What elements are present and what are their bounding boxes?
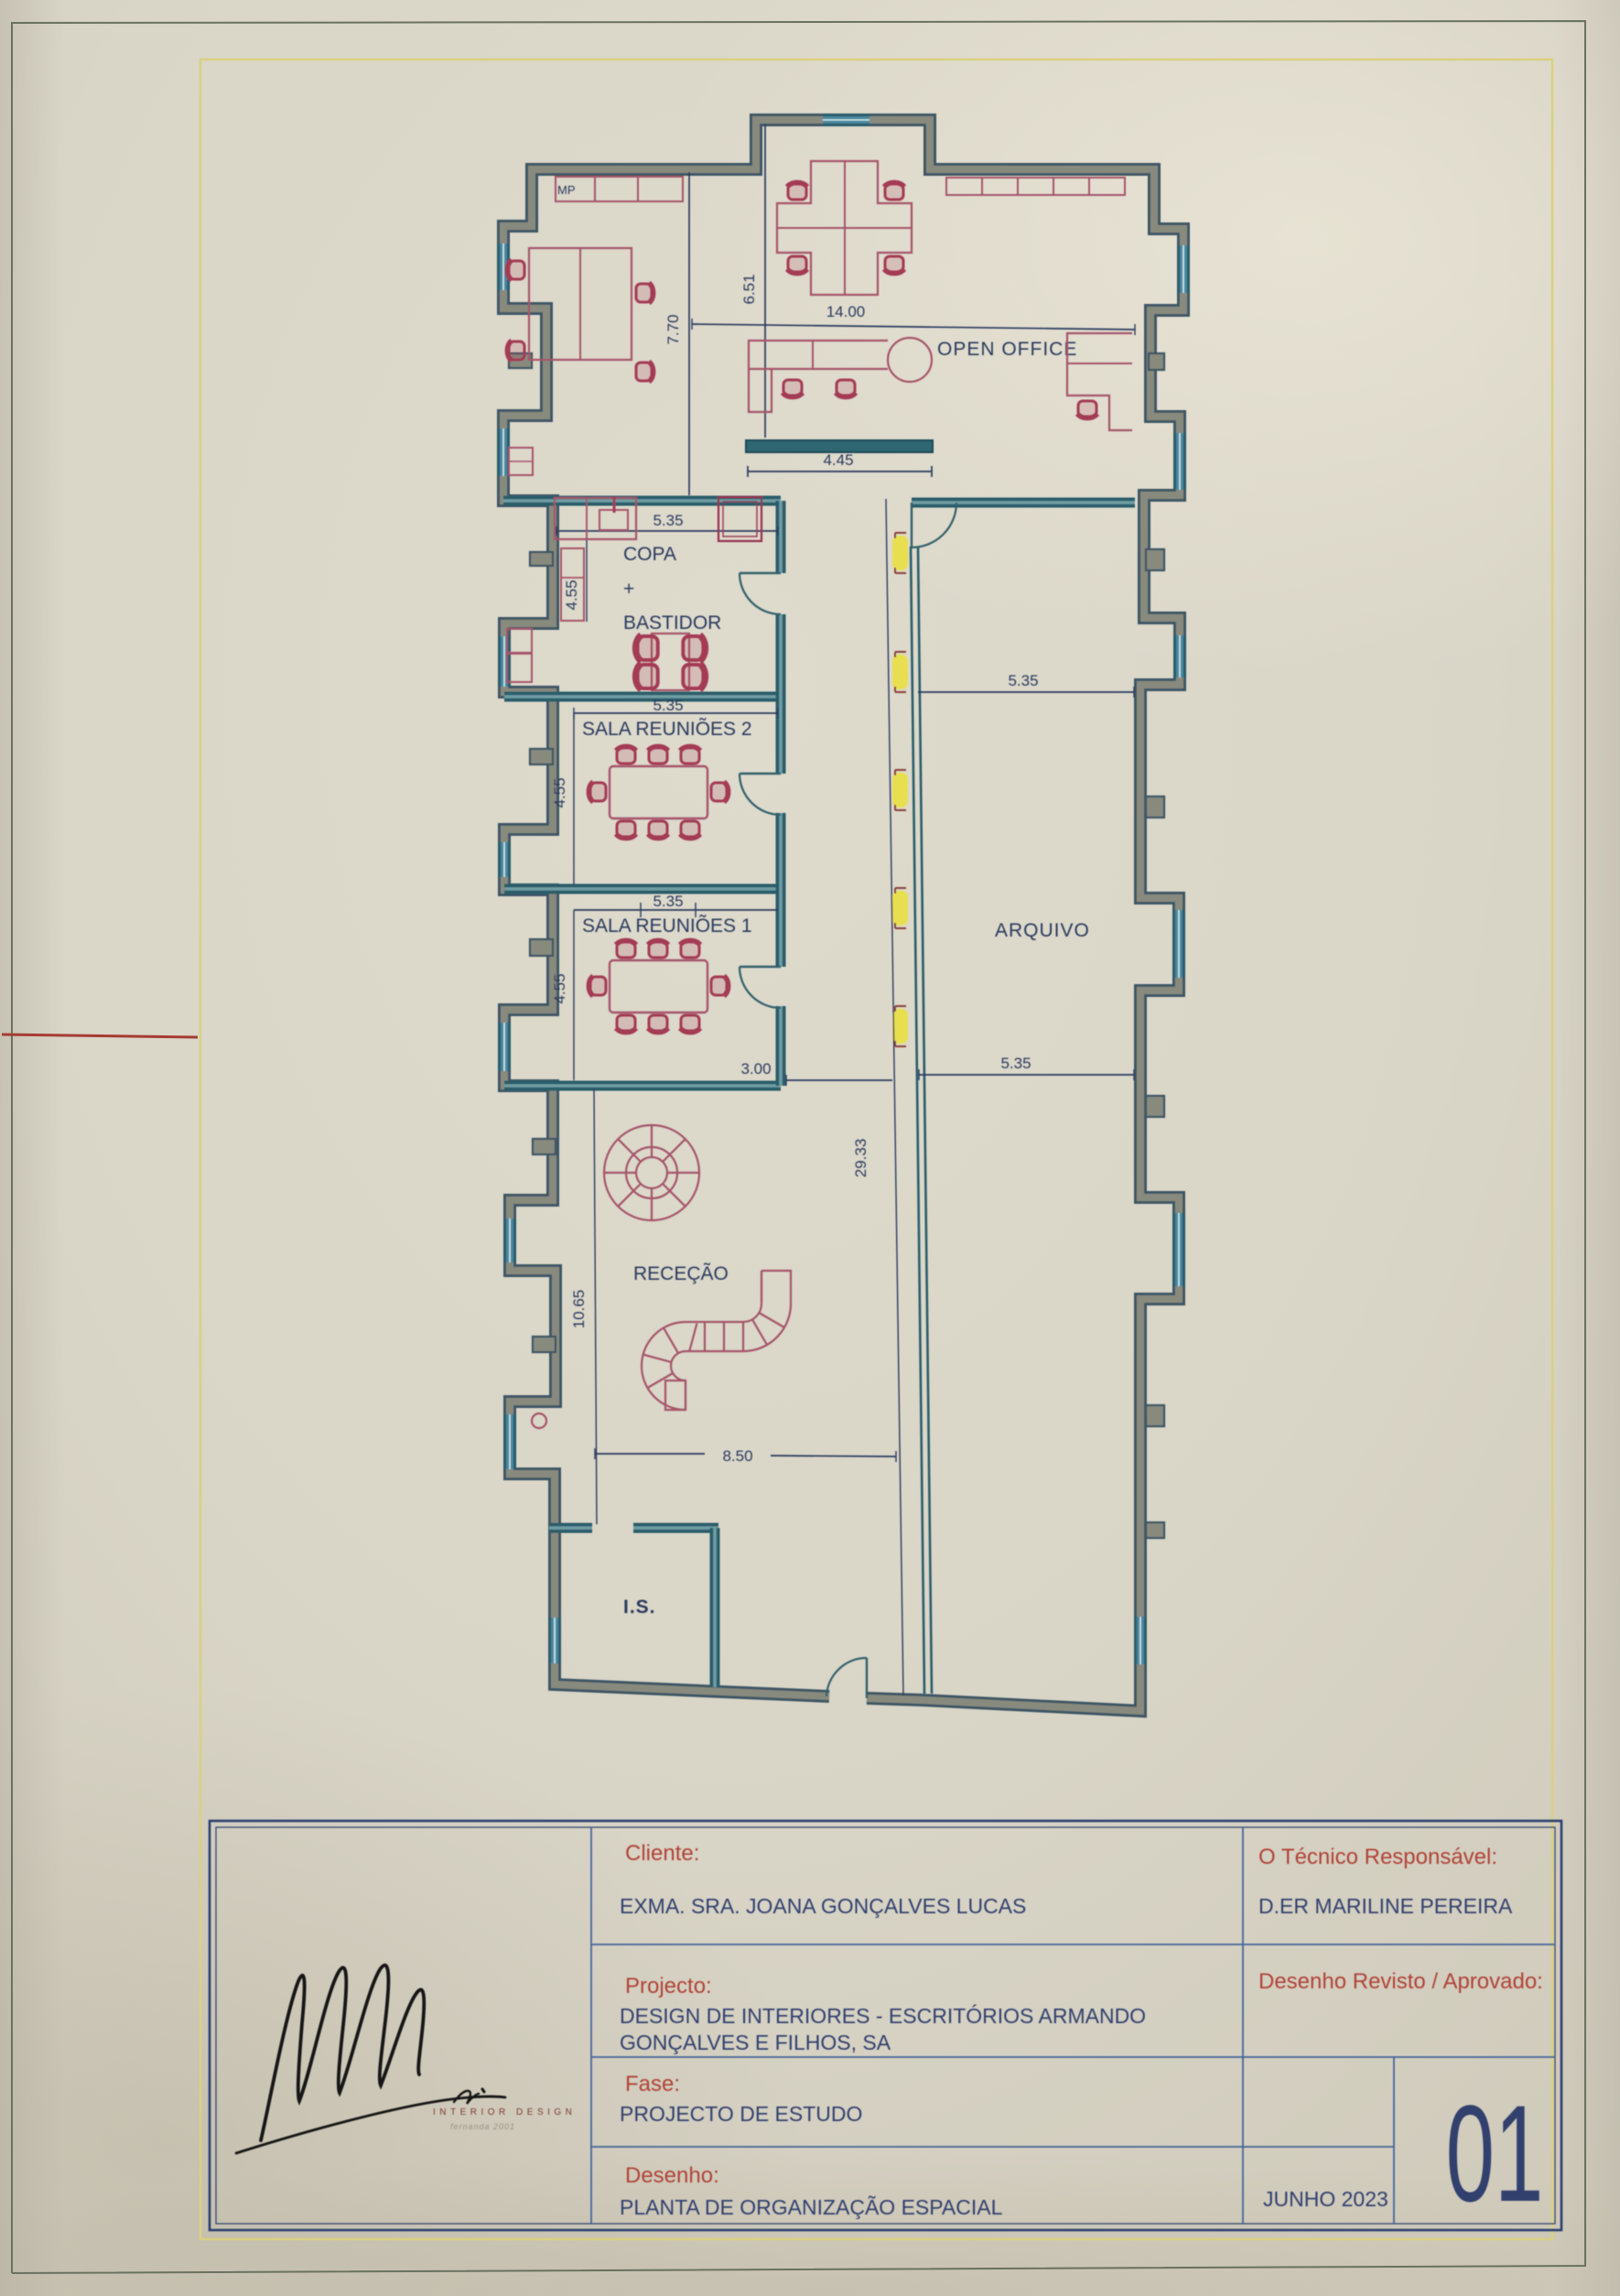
svg-text:PLANTA DE ORGANIZAÇÃO ESPACIAL: PLANTA DE ORGANIZAÇÃO ESPACIAL: [620, 2195, 1003, 2219]
svg-text:Projecto:: Projecto:: [625, 1974, 712, 1998]
svg-text:6.51: 6.51: [740, 274, 758, 304]
svg-text:4.55: 4.55: [551, 777, 568, 807]
svg-text:7.70: 7.70: [664, 314, 682, 344]
svg-text:RECEÇÃO: RECEÇÃO: [633, 1262, 729, 1284]
svg-text:Desenho:: Desenho:: [625, 2163, 719, 2188]
svg-text:Cliente:: Cliente:: [625, 1841, 699, 1866]
svg-text:GONÇALVES E FILHOS, SA: GONÇALVES E FILHOS, SA: [620, 2031, 891, 2054]
svg-text:PROJECTO DE ESTUDO: PROJECTO DE ESTUDO: [620, 2102, 862, 2126]
svg-text:5.35: 5.35: [1000, 1055, 1031, 1072]
svg-text:5.35: 5.35: [653, 893, 683, 910]
svg-text:10.65: 10.65: [570, 1290, 588, 1329]
svg-text:MP: MP: [557, 183, 576, 197]
svg-text:D.ER MARILINE PEREIRA: D.ER MARILINE PEREIRA: [1258, 1894, 1513, 1918]
svg-text:OPEN OFFICE: OPEN OFFICE: [937, 339, 1077, 360]
svg-text:SALA REUNIÕES 1: SALA REUNIÕES 1: [582, 915, 752, 937]
svg-text:4.55: 4.55: [551, 973, 568, 1003]
svg-text:fernanda 2001: fernanda 2001: [450, 2122, 515, 2131]
svg-text:4.55: 4.55: [563, 579, 580, 610]
svg-text:BASTIDOR: BASTIDOR: [623, 612, 721, 634]
svg-text:DESIGN DE INTERIORES - ESCRITÓ: DESIGN DE INTERIORES - ESCRITÓRIOS ARMAN…: [620, 2004, 1146, 2028]
svg-text:4.45: 4.45: [823, 451, 853, 469]
svg-text:SALA REUNIÕES 2: SALA REUNIÕES 2: [582, 718, 752, 740]
svg-text:Fase:: Fase:: [625, 2072, 680, 2096]
svg-text:8.50: 8.50: [722, 1447, 752, 1465]
svg-text:5.35: 5.35: [653, 697, 683, 714]
svg-text:14.00: 14.00: [826, 303, 866, 320]
svg-text:EXMA. SRA. JOANA GONÇALVES LUC: EXMA. SRA. JOANA GONÇALVES LUCAS: [620, 1894, 1026, 1918]
svg-text:INTERIOR DESIGN: INTERIOR DESIGN: [433, 2107, 576, 2117]
svg-text:3.00: 3.00: [740, 1060, 771, 1078]
svg-text:COPA: COPA: [623, 544, 676, 565]
svg-text:5.35: 5.35: [653, 512, 683, 529]
svg-text:Desenho Revisto / Aprovado:: Desenho Revisto / Aprovado:: [1258, 1969, 1543, 1994]
svg-text:I.S.: I.S.: [623, 1597, 656, 1618]
svg-text:ARQUIVO: ARQUIVO: [995, 920, 1090, 941]
svg-text:+: +: [623, 579, 634, 600]
svg-text:JUNHO 2023: JUNHO 2023: [1263, 2187, 1388, 2211]
svg-text:O Técnico Responsável:: O Técnico Responsável:: [1258, 1845, 1497, 1869]
svg-text:29.33: 29.33: [852, 1139, 869, 1178]
svg-text:5.35: 5.35: [1008, 672, 1038, 689]
svg-text:01: 01: [1446, 2076, 1544, 2230]
